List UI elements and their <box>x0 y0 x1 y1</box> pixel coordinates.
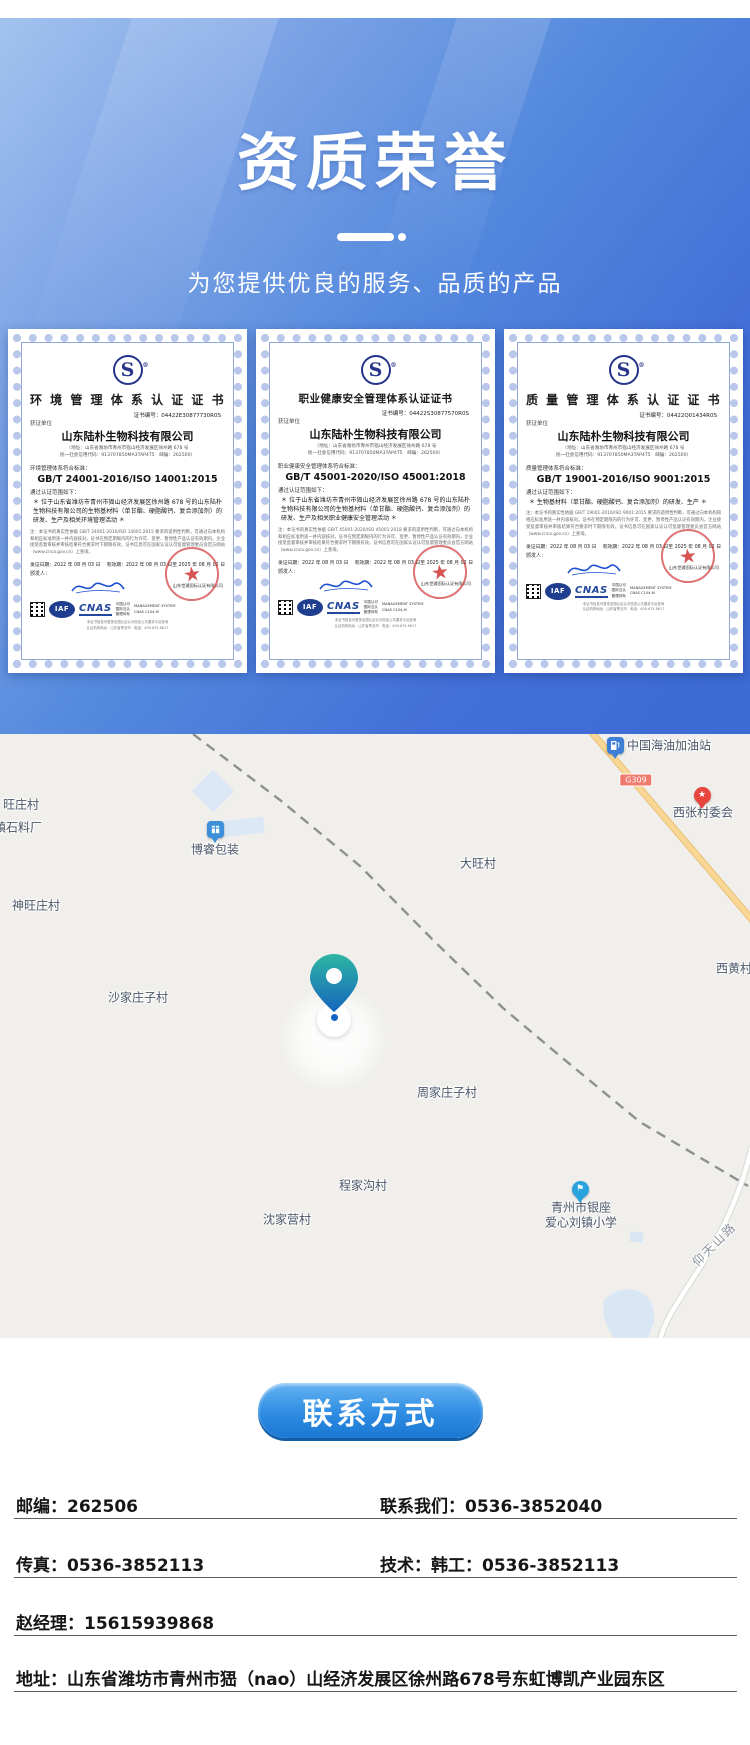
certificate-standard-label: 环境管理体系符合标准： <box>30 464 225 472</box>
page-subtitle: 为您提供优良的服务、品质的产品 <box>0 264 750 298</box>
certificate-issue-date: 发证日期：2022 年 08 月 03 日 <box>278 559 348 566</box>
certificate-title: 职业健康安全管理体系认证证书 <box>278 391 473 406</box>
map-label: 沙家庄子村 <box>108 989 168 1006</box>
committee-star-pin-icon: ★ <box>694 787 711 804</box>
location-map[interactable]: 中国海油加油站西张村委会大旺村西黄村旺庄村镇石料厂博睿包装神旺庄村沙家庄子村周家… <box>0 734 750 1338</box>
map-building <box>192 770 234 812</box>
map-label: 周家庄子村 <box>417 1084 477 1101</box>
map-label: 程家沟村 <box>339 1177 387 1194</box>
contact-row: 邮编：262506联系我们：0536-3852040 <box>14 1492 737 1519</box>
contact-row-left: 赵经理：15615939868 <box>16 1609 214 1634</box>
certificate-issuer-label: 颁发人： <box>526 552 721 559</box>
certificate-standard: GB/T 45001-2020/ISO 45001:2018 <box>278 472 473 483</box>
top-white-bar <box>0 0 750 18</box>
page: 资质荣誉 为您提供优良的服务、品质的产品 S 环 境 管 理 体 系 认 证 证… <box>0 0 750 1745</box>
map-label: 旺庄村 <box>3 796 39 813</box>
qr-code-icon <box>526 584 541 599</box>
contact-row-left: 邮编：262506 <box>16 1492 138 1517</box>
certificate-signature-row: 山东世通国际认证有限公司 ★ <box>30 577 225 599</box>
contact-row-right: 联系我们：0536-3852040 <box>380 1492 602 1517</box>
certificate-title: 质 量 管 理 体 系 认 证 证 书 <box>526 391 721 408</box>
certificate-company-name: 山东陆朴生物科技有限公司 <box>278 426 473 442</box>
certification-body-logo: S <box>361 355 391 385</box>
map-label: 镇石料厂 <box>0 819 42 836</box>
certificate-issuer-name: 山东世通国际认证有限公司 <box>421 581 471 587</box>
iaf-logo-icon: IAF <box>49 601 75 618</box>
certificate-company-name: 山东陆朴生物科技有限公司 <box>30 428 225 444</box>
certificate-issuer-name: 山东世通国际认证有限公司 <box>173 583 223 589</box>
certificate-address: （地址：山东省潍坊市青州市峱山经济发展区徐州路 678 号统一社会信用代码：91… <box>526 446 721 460</box>
signature-icon <box>318 575 374 595</box>
contact-row: 地址：山东省潍坊市青州市峱（nao）山经济发展区徐州路678号东虹博凯产业园东区 <box>14 1665 737 1692</box>
cnas-chinese-text: 中国认可国际互认管理体系 <box>612 583 626 599</box>
certificate-scope-label: 通过认证范围如下： <box>30 488 225 496</box>
accreditation-logos: IAF CNAS 中国认可国际互认管理体系 MANAGEMENT SYSTEMC… <box>526 583 721 600</box>
school-flag-pin-icon: ⚑ <box>572 1181 589 1198</box>
map-building <box>629 1231 643 1243</box>
certificate-number: 证书编号：04422S30877570R0S <box>278 409 473 417</box>
certificate-valid-date: 有效期：2022 年 08 月 03 日至 2025 年 08 月 02 日 <box>355 559 473 566</box>
contact-row-right: 技术：韩工：0536-3852113 <box>380 1551 619 1576</box>
accreditation-logos: IAF CNAS 中国认可国际互认管理体系 MANAGEMENT SYSTEMC… <box>30 601 225 618</box>
certificate-dates: 发证日期：2022 年 08 月 03 日 有效期：2022 年 08 月 03… <box>526 543 721 550</box>
contact-row-left: 传真：0536-3852113 <box>16 1551 204 1576</box>
cnas-logo-icon: CNAS <box>327 601 360 614</box>
divider-dot <box>398 233 406 241</box>
certificate-footer-text: 本证书信息可登录全国认证认可信息公共服务平台查询认证机构地址：山东省青岛市 电话… <box>526 602 721 613</box>
certificate-legal-text: 注：本证书的真实性依据 GB/T 45001-2020/ISO 45001:20… <box>278 528 473 556</box>
certificate-footer-text: 本证书信息可登录全国认证认可信息公共服务平台查询认证机构地址：山东省青岛市 电话… <box>30 620 225 631</box>
certificate-address: （地址：山东省潍坊市青州市峱山经济发展区徐州路 678 号统一社会信用代码：91… <box>30 446 225 460</box>
certificate-valid-date: 有效期：2022 年 08 月 03 日至 2025 年 08 月 02 日 <box>603 543 721 550</box>
divider-dash <box>337 233 394 241</box>
certificate-ornate-border: S 职业健康安全管理体系认证证书 证书编号：04422S30877570R0S … <box>261 334 490 668</box>
certificate-card[interactable]: S 职业健康安全管理体系认证证书 证书编号：04422S30877570R0S … <box>256 329 495 673</box>
certificate-standard-label: 质量管理体系符合标准： <box>526 464 721 472</box>
certificate-dates: 发证日期：2022 年 08 月 03 日 有效期：2022 年 08 月 03… <box>30 561 225 568</box>
certificate-dates: 发证日期：2022 年 08 月 03 日 有效期：2022 年 08 月 03… <box>278 559 473 566</box>
map-label: 神旺庄村 <box>12 897 60 914</box>
certificate-number: 证书编号：04422E30877730R0S <box>30 411 225 419</box>
map-label: 中国海油加油站 <box>627 737 711 754</box>
page-title: 资质荣誉 <box>0 112 750 202</box>
certificate-standard: GB/T 24001-2016/ISO 14001:2015 <box>30 474 225 485</box>
certificate-issuer-label: 颁发人： <box>30 570 225 577</box>
contact-button[interactable]: 联系方式 <box>258 1383 483 1438</box>
certificate-signature-row: 山东世通国际认证有限公司 ★ <box>278 575 473 597</box>
map-label: 大旺村 <box>460 855 496 872</box>
map-building <box>217 817 264 838</box>
certificate-scope: ＊ 位于山东省潍坊市青州市峱山经济发展区徐州路 678 号的山东陆朴生物科技有限… <box>278 496 473 524</box>
title-divider <box>0 233 750 242</box>
management-system-text: MANAGEMENT SYSTEMCNAS C104-M <box>382 602 423 613</box>
map-label: 爱心刘镇小学 <box>545 1214 617 1231</box>
map-label: 沈家营村 <box>263 1211 311 1228</box>
certificate-legal-text: 注：本证书的真实性依据 GB/T 19001-2016/ISO 9001:201… <box>526 511 721 539</box>
certificate-standard-label: 职业健康安全管理体系符合标准： <box>278 462 473 470</box>
signature-icon <box>70 577 126 597</box>
management-system-text: MANAGEMENT SYSTEMCNAS C104-M <box>134 604 175 615</box>
contact-row: 赵经理：15615939868 <box>14 1609 737 1636</box>
certificate-unit-label: 获证单位 <box>30 419 225 427</box>
iaf-logo-icon: IAF <box>297 599 323 616</box>
g309-road-casing <box>588 734 750 922</box>
certificate-issuer-name: 山东世通国际认证有限公司 <box>669 565 719 571</box>
g309-road-badge: G309 <box>619 774 652 787</box>
map-water <box>603 1289 654 1338</box>
certificate-scope: ＊ 位于山东省潍坊市青州市峱山经济发展区徐州路 678 号的山东陆朴生物科技有限… <box>30 498 225 526</box>
company-marker-dot <box>331 1014 338 1021</box>
certificate-scope-label: 通过认证范围如下： <box>526 488 721 496</box>
package-pin-icon <box>207 821 224 838</box>
map-label: 博睿包装 <box>191 841 239 858</box>
certificate-ornate-border: S 环 境 管 理 体 系 认 证 证 书 证书编号：04422E3087773… <box>13 334 242 668</box>
certificate-company-name: 山东陆朴生物科技有限公司 <box>526 428 721 444</box>
company-location-pin-icon <box>310 954 358 1012</box>
contact-row: 传真：0536-3852113技术：韩工：0536-3852113 <box>14 1551 737 1578</box>
railway-dashed-line <box>193 734 748 1186</box>
cnas-chinese-text: 中国认可国际互认管理体系 <box>364 600 378 616</box>
certificate-footer-text: 本证书信息可登录全国认证认可信息公共服务平台查询认证机构地址：山东省青岛市 电话… <box>278 618 473 629</box>
iaf-logo-icon: IAF <box>545 583 571 600</box>
certificate-scope: ＊ 生物基材料（单甘酯、硬脂酸钙、复合添加剂）的研发、生产 ＊ <box>526 498 721 507</box>
certificate-signature-row: 山东世通国际认证有限公司 ★ <box>526 559 721 581</box>
certificate-standard: GB/T 19001-2016/ISO 9001:2015 <box>526 474 721 485</box>
cnas-logo-icon: CNAS <box>575 585 608 598</box>
qr-code-icon <box>30 602 45 617</box>
cnas-logo-icon: CNAS <box>79 603 112 616</box>
certificate-issuer-label: 颁发人： <box>278 568 473 575</box>
management-system-text: MANAGEMENT SYSTEMCNAS C104-M <box>630 586 671 597</box>
accreditation-logos: IAF CNAS 中国认可国际互认管理体系 MANAGEMENT SYSTEMC… <box>278 599 473 616</box>
signature-icon <box>566 559 622 579</box>
certificate-unit-label: 获证单位 <box>278 417 473 425</box>
certificate-card[interactable]: S 质 量 管 理 体 系 认 证 证 书 证书编号：04422Q01434R0… <box>504 329 743 673</box>
cnas-chinese-text: 中国认可国际互认管理体系 <box>116 602 130 618</box>
certification-body-logo: S <box>609 355 639 385</box>
certification-body-logo: S <box>113 355 143 385</box>
certificate-row: S 环 境 管 理 体 系 认 证 证 书 证书编号：04422E3087773… <box>0 329 750 673</box>
certificate-legal-text: 注：本证书的真实性依据 GB/T 24001-2016/ISO 14001:20… <box>30 530 225 558</box>
contact-row-left: 地址：山东省潍坊市青州市峱（nao）山经济发展区徐州路678号东虹博凯产业园东区 <box>16 1665 665 1690</box>
certificate-card[interactable]: S 环 境 管 理 体 系 认 证 证 书 证书编号：04422E3087773… <box>8 329 247 673</box>
certificate-valid-date: 有效期：2022 年 08 月 03 日至 2025 年 08 月 02 日 <box>107 561 225 568</box>
certificate-unit-label: 获证单位 <box>526 419 721 427</box>
certificate-ornate-border: S 质 量 管 理 体 系 认 证 证 书 证书编号：04422Q01434R0… <box>509 334 738 668</box>
qr-code-icon <box>278 600 293 615</box>
certificate-title: 环 境 管 理 体 系 认 证 证 书 <box>30 391 225 408</box>
map-label: 西黄村 <box>716 960 750 977</box>
certificate-issue-date: 发证日期：2022 年 08 月 03 日 <box>526 543 596 550</box>
certificate-number: 证书编号：04422Q01434R0S <box>526 411 721 419</box>
gas-station-pin-icon <box>607 737 624 754</box>
certificate-address: （地址：山东省潍坊市青州市峱山经济发展区徐州路 678 号统一社会信用代码：91… <box>278 444 473 458</box>
certificate-scope-label: 通过认证范围如下： <box>278 486 473 494</box>
certificate-issue-date: 发证日期：2022 年 08 月 03 日 <box>30 561 100 568</box>
